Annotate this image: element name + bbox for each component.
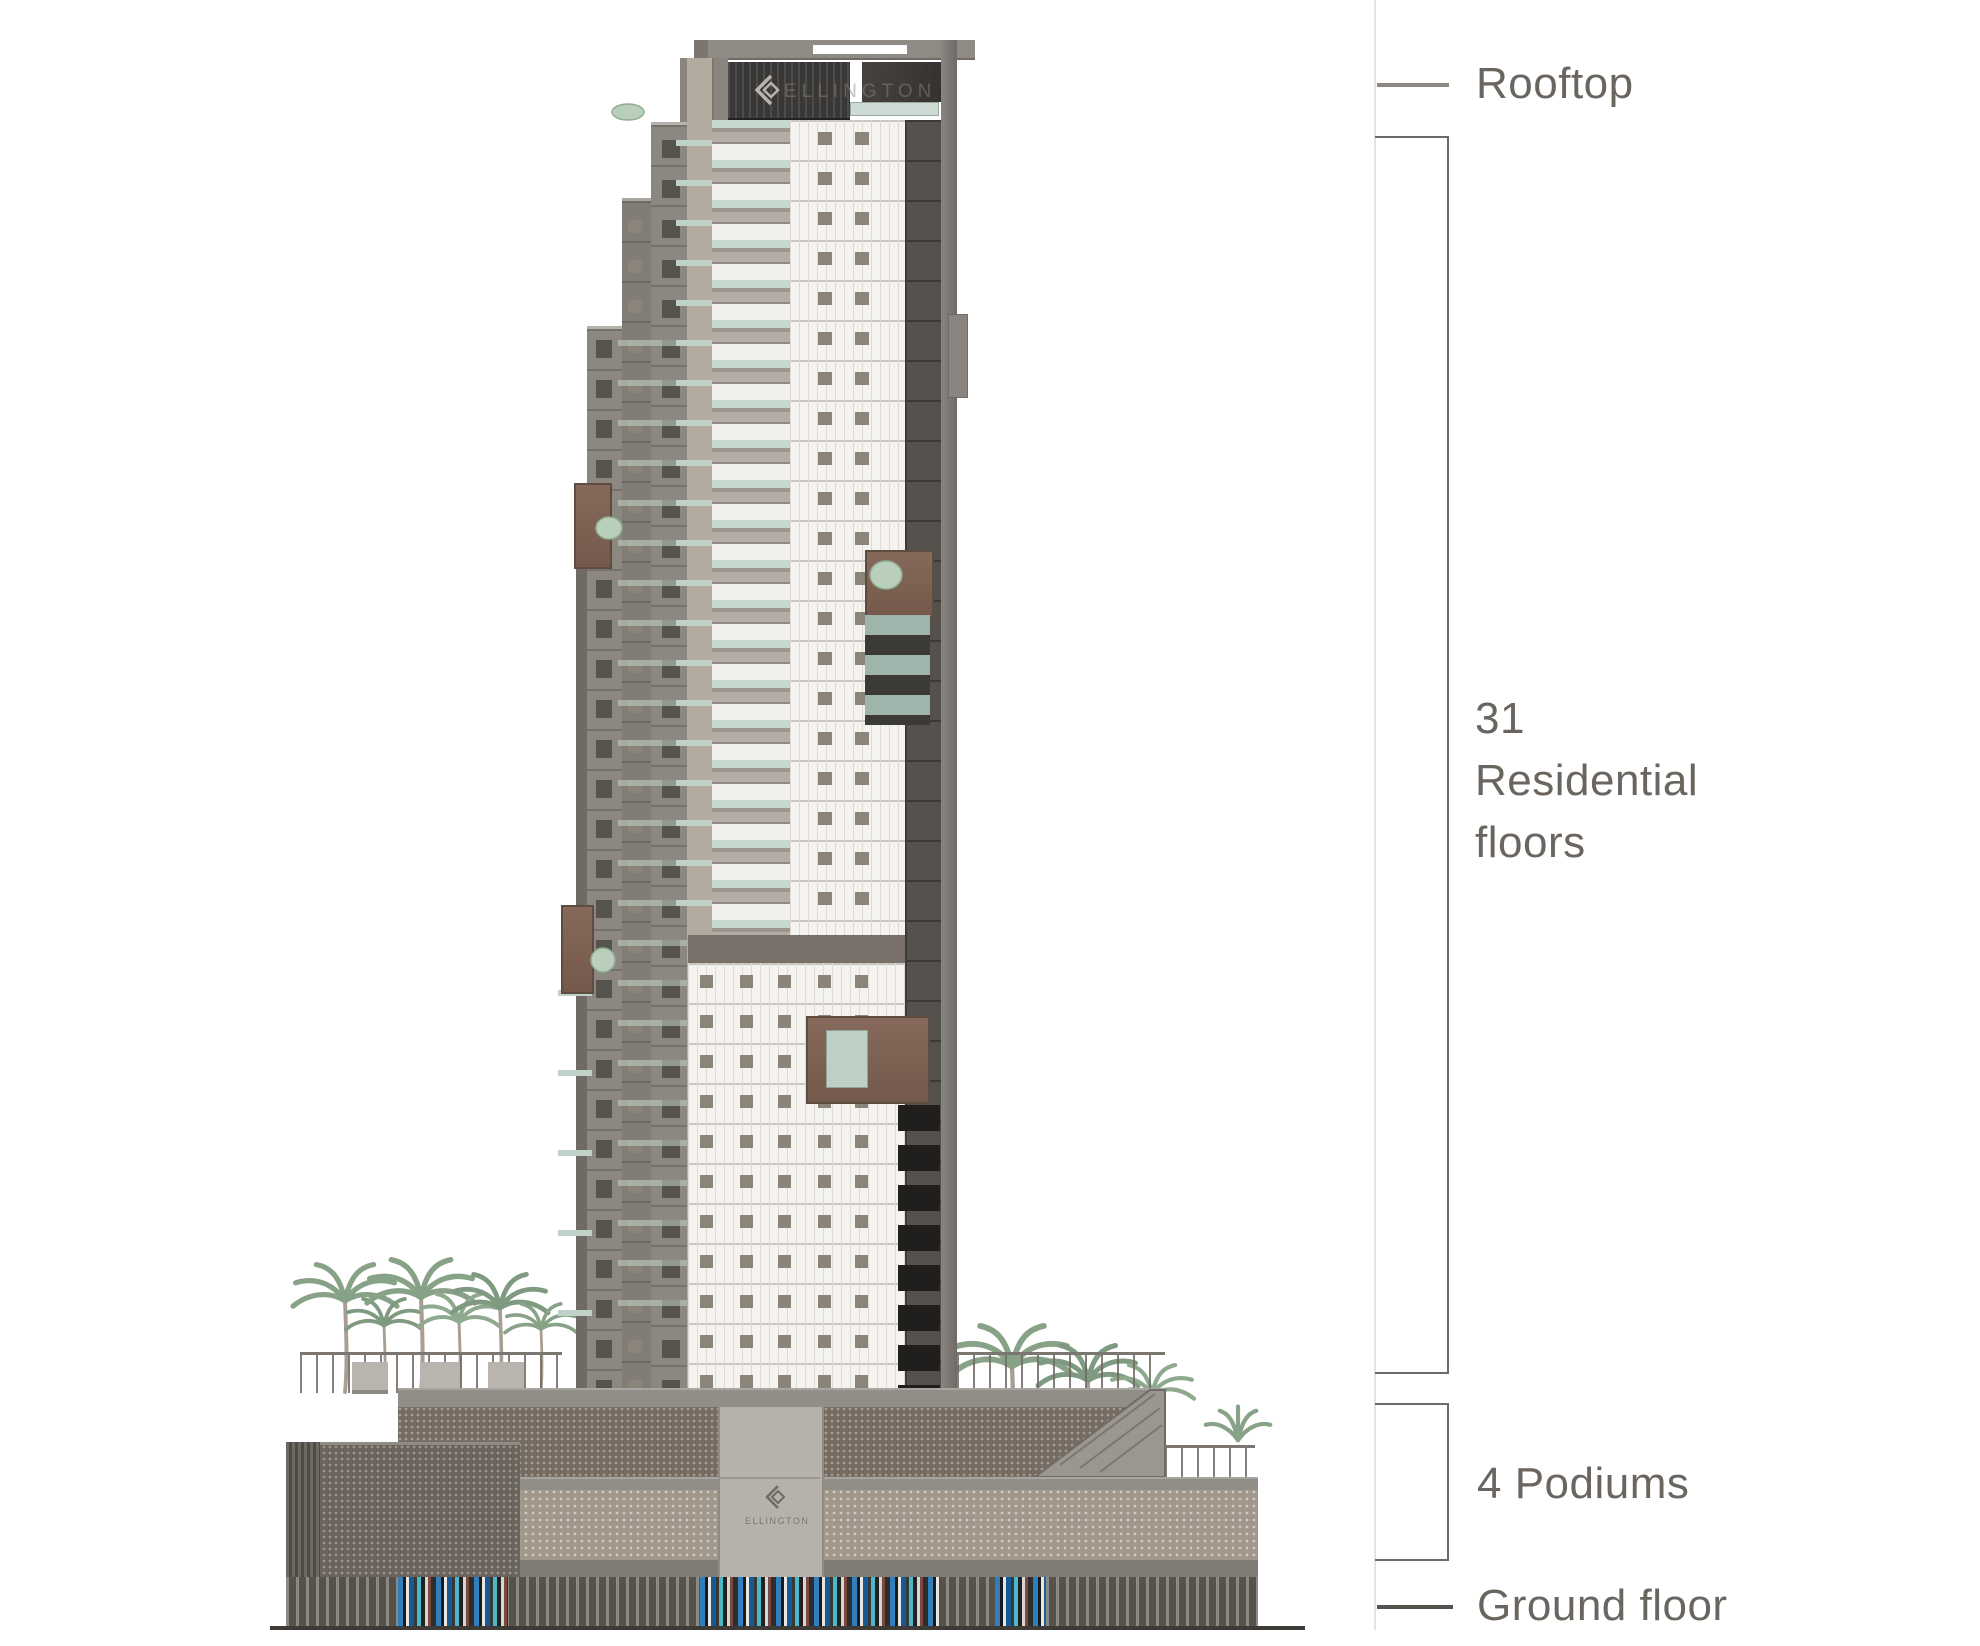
building-elevation-figure: ELLINGTON ELLINGTON Rooftop 31 Residenti… [0, 0, 1980, 1646]
residential-label: 31 Residential floors [1475, 688, 1698, 874]
residential-bracket [1375, 136, 1449, 1374]
ground-floor-tick [1377, 1605, 1453, 1609]
entrance-wordmark: ELLINGTON [745, 1516, 809, 1526]
ground-floor-label: Ground floor [1477, 1584, 1728, 1628]
rooftop-tick [1377, 83, 1449, 87]
podiums-bracket [1375, 1403, 1449, 1561]
entrance-chevron-icon [767, 1486, 784, 1508]
rooftop-label: Rooftop [1476, 62, 1634, 106]
podiums-label: 4 Podiums [1477, 1462, 1689, 1506]
sign-wordmark: ELLINGTON [784, 81, 936, 102]
sign-chevron-icon [757, 76, 778, 104]
